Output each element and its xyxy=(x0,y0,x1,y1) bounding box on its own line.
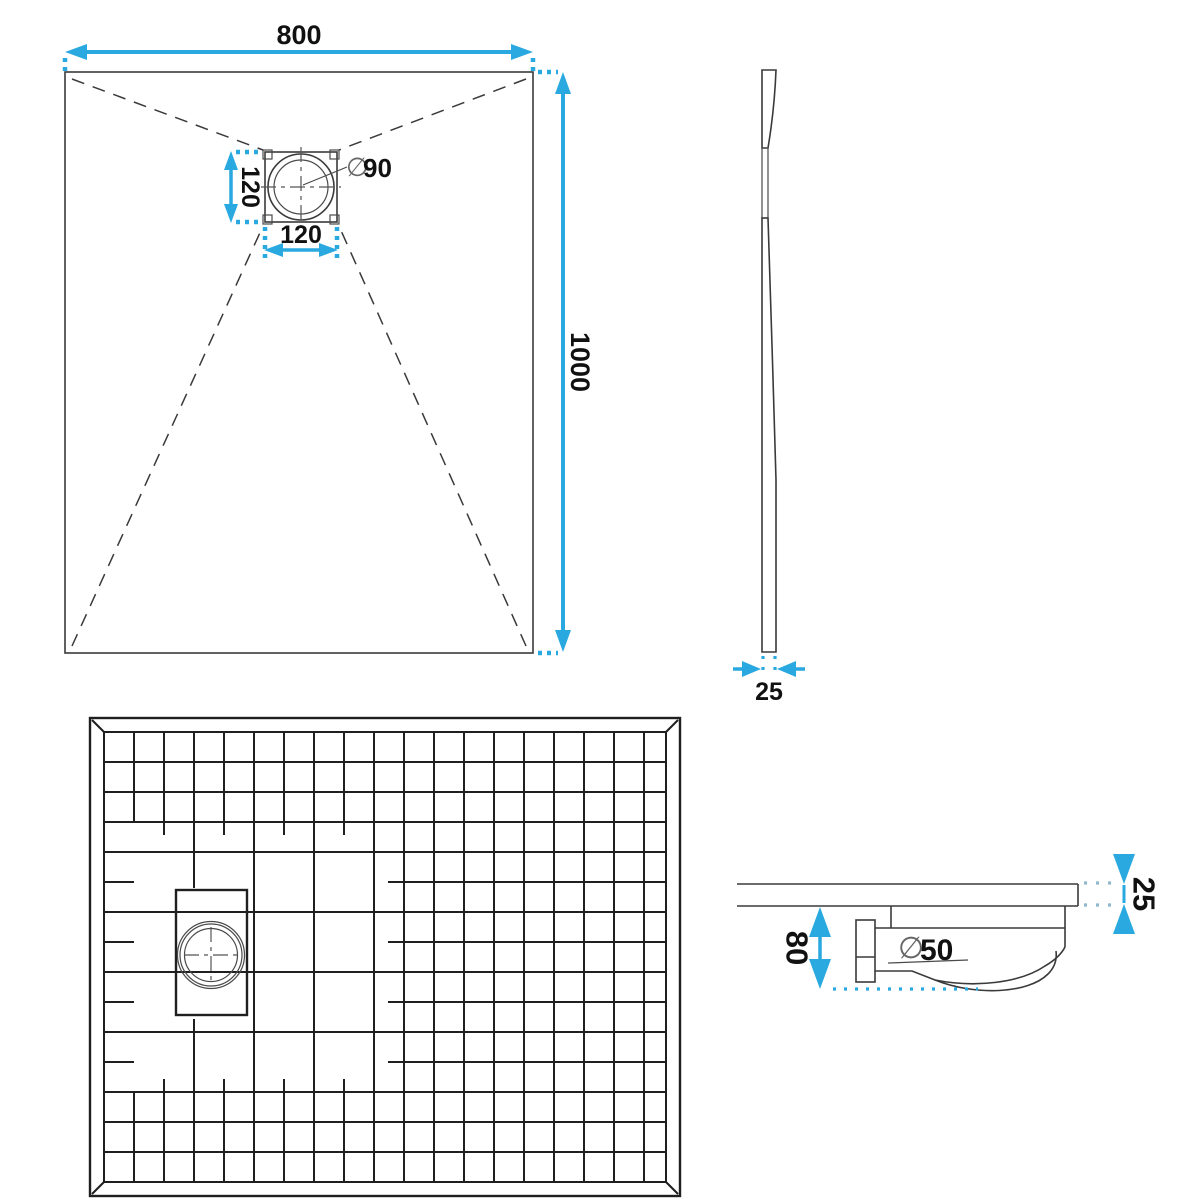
dimension-width-800: 800 xyxy=(65,20,533,71)
dimension-waste-diameter: ∅ 50 xyxy=(888,932,968,967)
section-detail-view: ∅ 50 80 25 xyxy=(737,854,1162,991)
tray-bottom-lip xyxy=(104,732,666,1182)
arrowhead-right xyxy=(777,661,796,677)
arrowhead-left xyxy=(65,44,87,60)
leader-line xyxy=(303,167,347,185)
technical-drawing-shower-tray: ∅ 90 800 1000 120 xyxy=(0,0,1200,1200)
dim-label-1000: 1000 xyxy=(565,332,595,392)
bottom-texture-view xyxy=(90,718,680,1196)
side-profile-lower xyxy=(762,218,776,652)
dim-label-25-side: 25 xyxy=(755,678,783,706)
dimension-thickness-25: 25 xyxy=(733,656,805,706)
side-view: 25 xyxy=(733,70,805,706)
dimension-thickness-25-section: 25 xyxy=(1084,854,1162,934)
top-view: ∅ 90 800 1000 120 xyxy=(65,20,595,653)
dim-label-80: 80 xyxy=(780,931,815,965)
drawing-canvas: ∅ 90 800 1000 120 xyxy=(0,0,1200,1200)
dim-label-120-horizontal: 120 xyxy=(280,221,322,249)
tray-slab xyxy=(737,884,1078,906)
tray-bottom-outline xyxy=(90,718,680,1196)
dim-label-120-vertical: 120 xyxy=(236,166,264,208)
dimension-drain-offset-vertical: 120 xyxy=(224,151,264,223)
arrowhead-top xyxy=(224,151,238,170)
arrowhead-right xyxy=(511,44,533,60)
side-profile-upper xyxy=(762,70,776,148)
arrowhead-top xyxy=(555,72,571,94)
arrowhead-left xyxy=(742,661,761,677)
dim-label-800: 800 xyxy=(276,20,321,50)
slope-diagonals xyxy=(72,79,526,646)
dim-label-drain-diameter: 90 xyxy=(363,153,392,183)
tray-outline xyxy=(65,72,533,653)
drain-bottom-view xyxy=(176,890,247,1015)
arrowhead-bottom xyxy=(224,204,238,223)
side-profile-drain-gap xyxy=(762,148,768,218)
texture-grid xyxy=(104,732,666,1182)
arrowhead-bottom xyxy=(555,630,571,652)
waste-flange xyxy=(856,920,875,982)
dimension-length-1000: 1000 xyxy=(538,72,595,653)
dim-label-25-section: 25 xyxy=(1127,877,1162,911)
dimension-drain-offset-horizontal: 120 xyxy=(264,221,338,258)
drain-top-view xyxy=(261,147,341,227)
drain-siphon-body xyxy=(856,906,1065,991)
